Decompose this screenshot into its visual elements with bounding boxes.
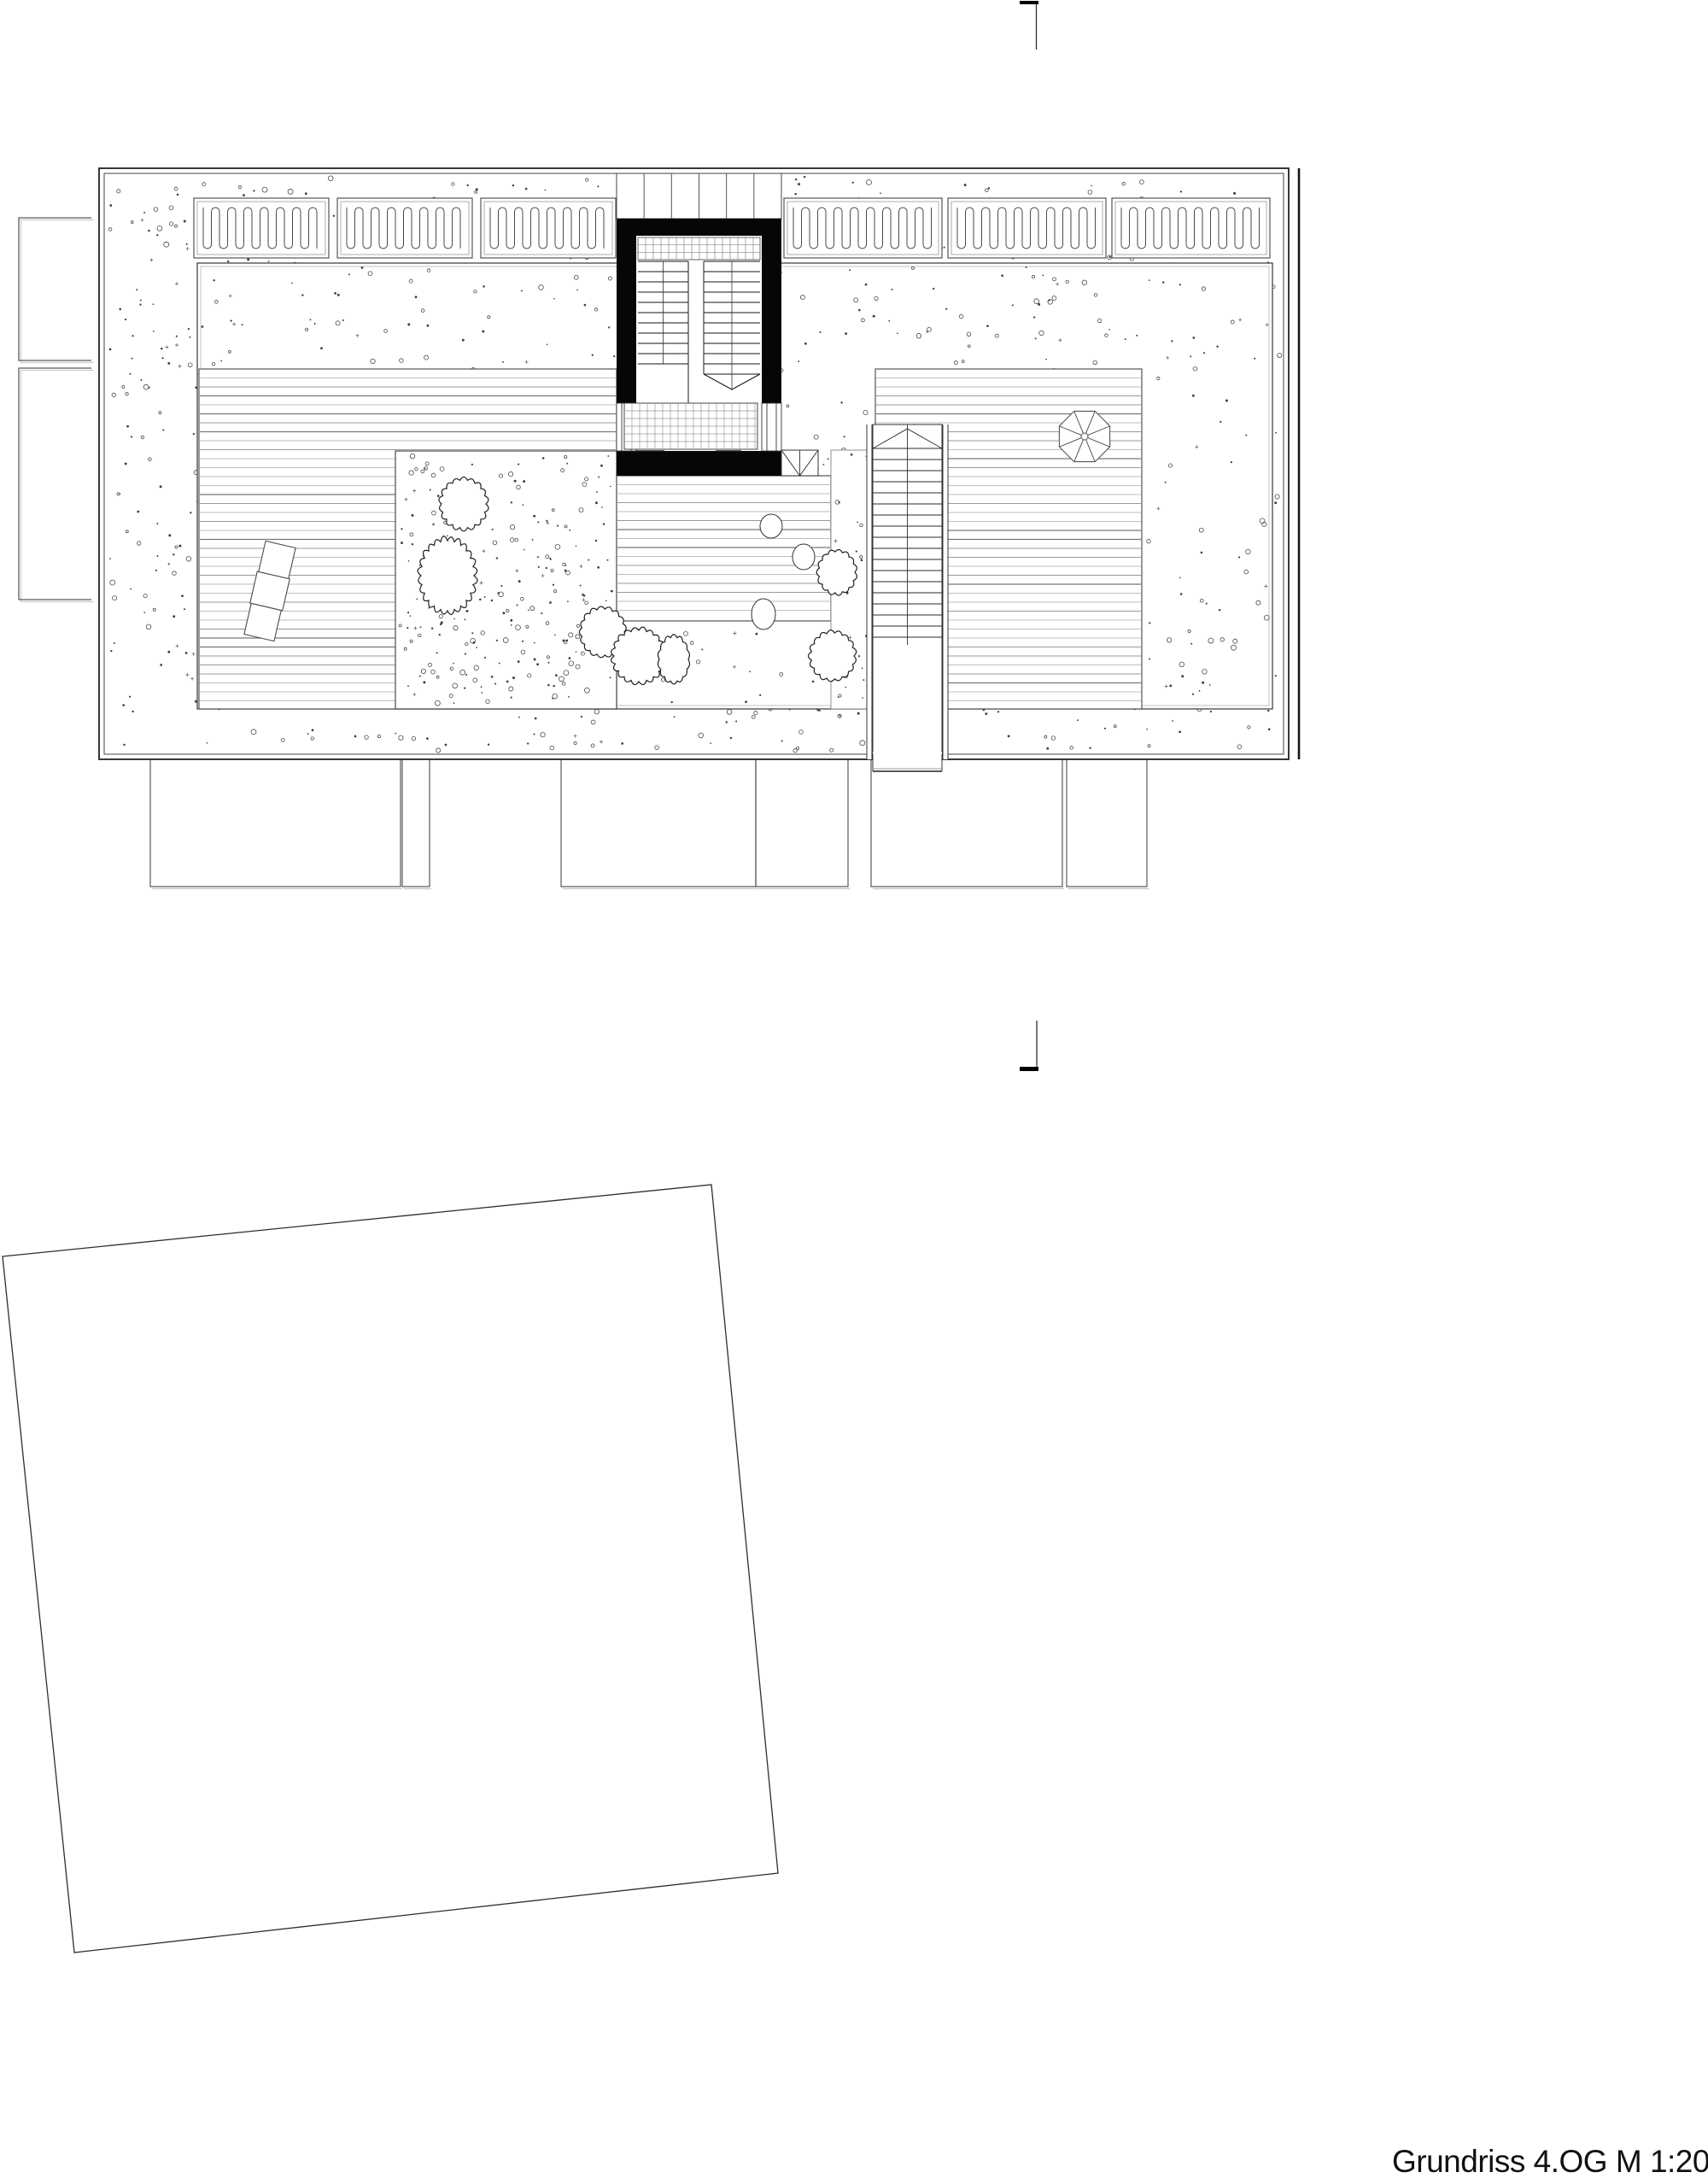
stair-canopy — [617, 173, 781, 219]
lower-floor-projection — [150, 760, 1149, 889]
solar-panel — [337, 198, 472, 258]
floor-plan-drawing — [0, 0, 1708, 2184]
left-annex-outlines — [19, 218, 94, 602]
core-top-glazing — [638, 237, 760, 260]
roof-hatch-box — [781, 450, 818, 476]
exterior-stair — [867, 425, 948, 771]
solar-panel — [784, 198, 942, 258]
architectural-sheet: Grundriss 4.OG M 1:200 — [0, 0, 1708, 2184]
plan-title: Grundriss 4.OG M 1:200 — [1392, 2146, 1708, 2177]
stair-core — [617, 219, 781, 476]
solar-panel — [1112, 198, 1270, 258]
solar-panel — [194, 198, 329, 258]
core-lower-glazing — [624, 403, 757, 451]
parasol — [1059, 411, 1109, 461]
solar-panel — [481, 198, 616, 258]
solar-panel — [948, 198, 1106, 258]
neighbor-building-outline — [3, 1185, 778, 1953]
